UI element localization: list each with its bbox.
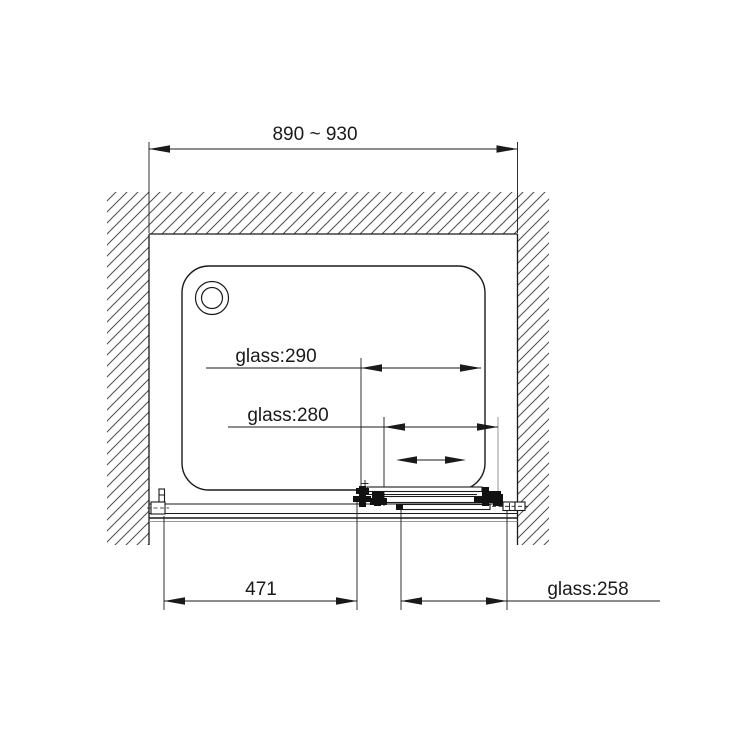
glass-panel-1 bbox=[367, 487, 482, 492]
roller-part bbox=[353, 496, 371, 502]
left-wall-profile bbox=[147, 489, 169, 514]
left-wall-hatch bbox=[107, 234, 149, 545]
dimension-label-glass-258: glass:258 bbox=[547, 579, 628, 600]
arrowhead-right bbox=[486, 597, 507, 605]
roller-part bbox=[482, 487, 489, 506]
roller-part bbox=[356, 488, 369, 494]
arrowhead-left bbox=[149, 145, 170, 153]
middle-roller-cluster bbox=[370, 491, 387, 506]
arrowhead-right bbox=[477, 423, 498, 431]
dimension-label-top-width: 890 ~ 930 bbox=[272, 124, 357, 145]
guide-block bbox=[396, 504, 403, 511]
dimension-label-bottom-width: 471 bbox=[245, 579, 277, 600]
dimension-label-glass-280: glass:280 bbox=[247, 405, 328, 426]
arrowhead-left bbox=[164, 597, 185, 605]
arrowhead-right bbox=[497, 145, 518, 153]
roller-part bbox=[370, 498, 387, 505]
arrowhead-right bbox=[336, 597, 357, 605]
tray-outline bbox=[182, 266, 485, 490]
roller-part bbox=[474, 497, 502, 503]
arrowhead-left bbox=[401, 597, 422, 605]
shower-tray bbox=[182, 266, 485, 490]
dimension-label-glass-290: glass:290 bbox=[235, 346, 316, 367]
roller-part bbox=[372, 492, 384, 498]
right-wall-hatch bbox=[518, 234, 550, 545]
back-wall-hatch bbox=[107, 192, 549, 234]
guide-rail-segment bbox=[401, 505, 490, 510]
shower-enclosure-plan-drawing: 890 ~ 930 glass:290 glass:280 bbox=[0, 0, 750, 750]
drawing-svg: 890 ~ 930 glass:290 glass:280 bbox=[0, 0, 750, 750]
